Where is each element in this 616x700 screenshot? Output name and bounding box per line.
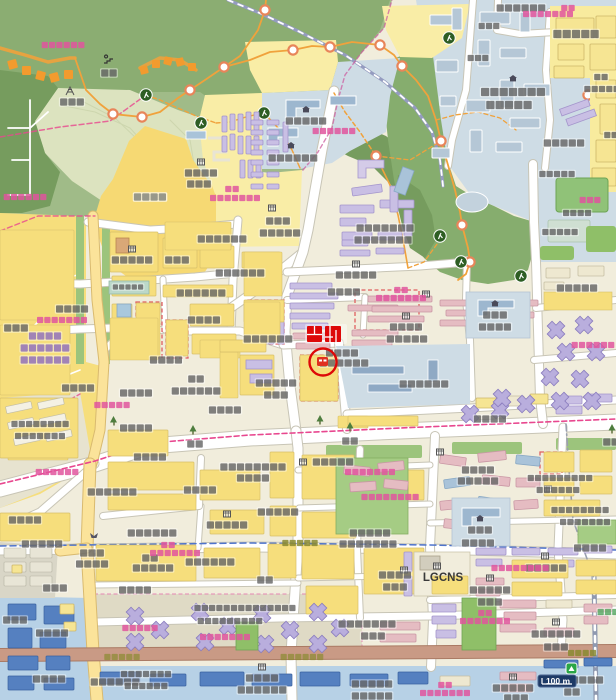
svg-text:100 m: 100 m — [546, 676, 571, 686]
svg-text:LGCNS: LGCNS — [423, 572, 464, 584]
